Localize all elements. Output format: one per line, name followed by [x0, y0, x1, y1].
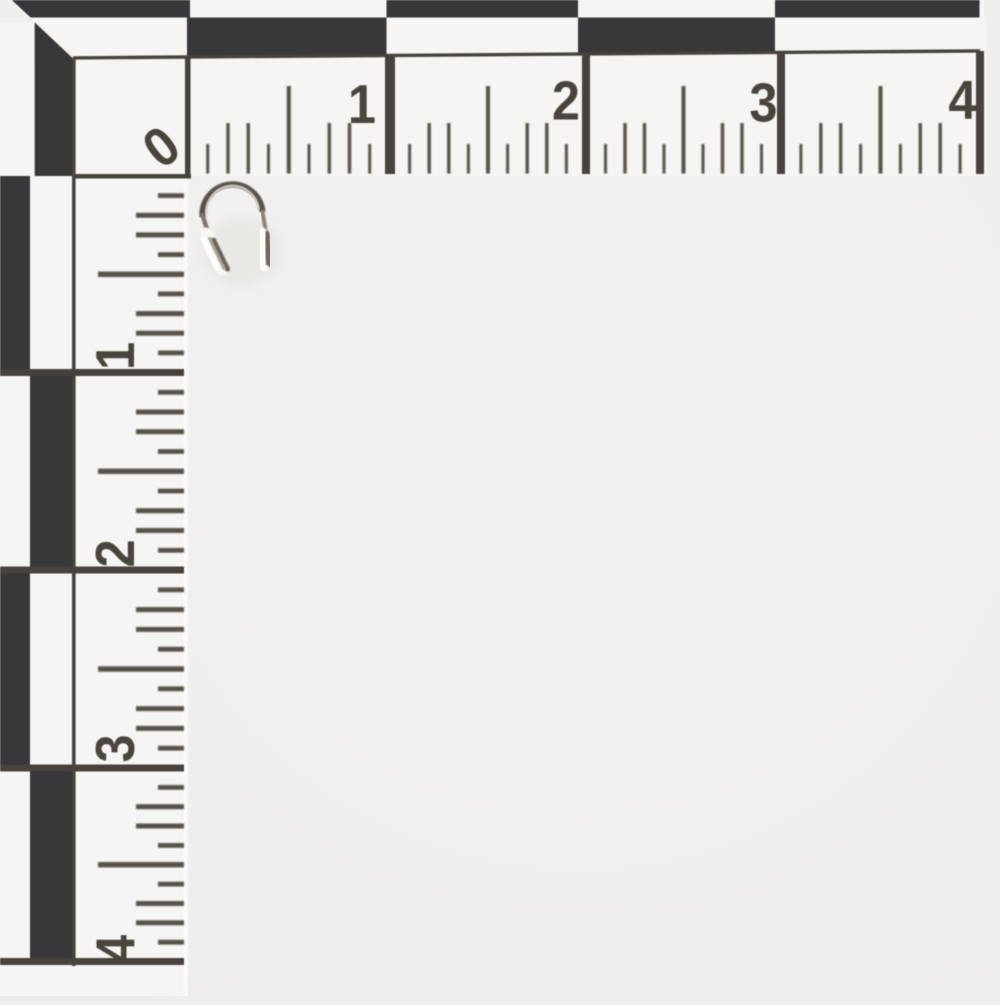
svg-text:2: 2 [85, 539, 146, 567]
svg-text:1: 1 [85, 342, 146, 370]
svg-text:3: 3 [85, 734, 146, 762]
svg-text:2: 2 [552, 71, 580, 132]
svg-text:4: 4 [948, 70, 977, 131]
svg-text:1: 1 [348, 74, 376, 135]
svg-text:3: 3 [749, 73, 777, 134]
svg-text:4: 4 [85, 934, 146, 963]
